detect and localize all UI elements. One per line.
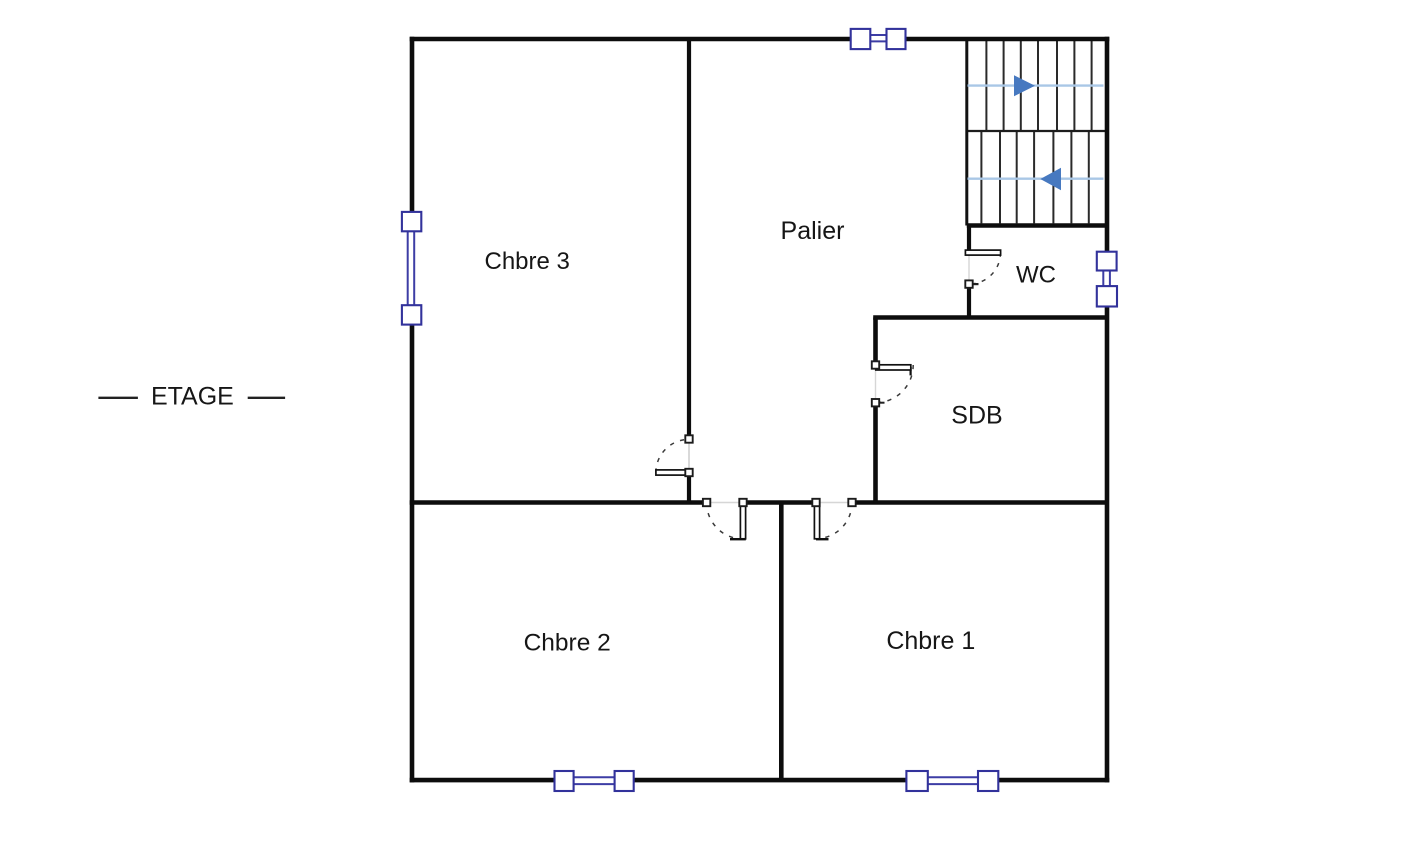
svg-text:ETAGE: ETAGE xyxy=(151,383,234,411)
svg-text:Chbre 1: Chbre 1 xyxy=(886,627,975,655)
svg-text:Chbre 2: Chbre 2 xyxy=(524,629,611,656)
svg-text:Chbre 3: Chbre 3 xyxy=(485,248,570,275)
svg-text:SDB: SDB xyxy=(951,401,1002,429)
svg-text:Palier: Palier xyxy=(781,217,845,245)
svg-text:WC: WC xyxy=(1016,261,1056,288)
